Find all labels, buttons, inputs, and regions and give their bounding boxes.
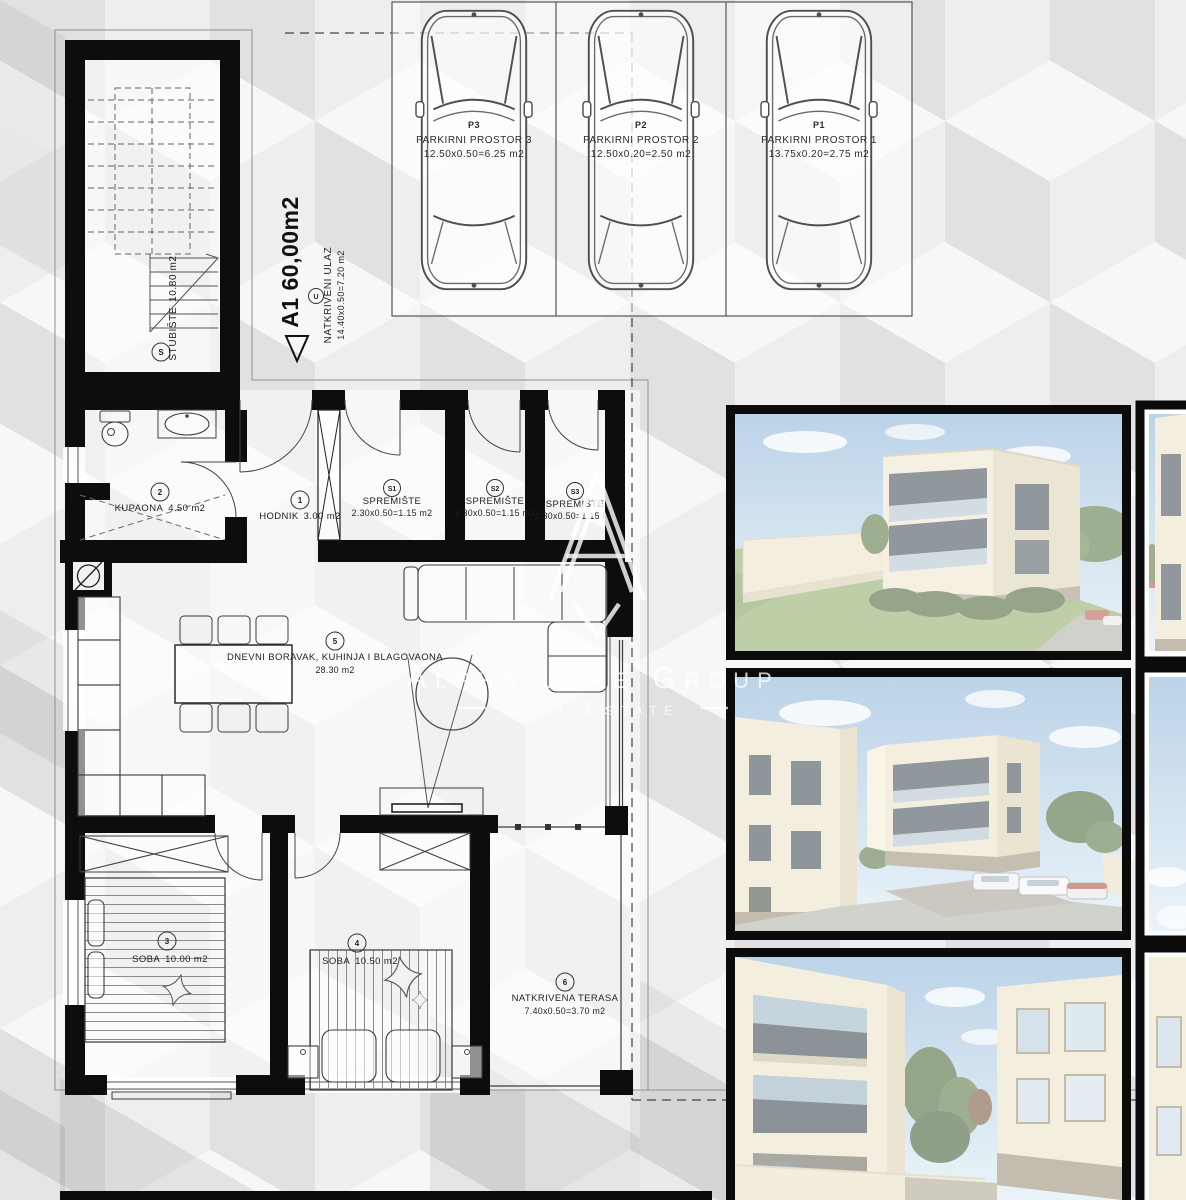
svg-text:S1: S1	[388, 486, 397, 493]
svg-text:28.30 m2: 28.30 m2	[315, 665, 354, 675]
svg-text:6: 6	[563, 978, 568, 987]
watermark-brand: Alpha Luxe Group	[406, 660, 780, 695]
render-1-image	[735, 414, 1135, 651]
render-sliver-2	[1140, 668, 1186, 940]
svg-text:NATKRIVENA TERASA: NATKRIVENA TERASA	[512, 993, 619, 1004]
svg-text:P3: P3	[468, 120, 480, 130]
svg-text:3: 3	[165, 937, 170, 946]
svg-text:KUPAONA4.50 m2: KUPAONA4.50 m2	[115, 503, 206, 514]
svg-text:U: U	[313, 294, 318, 301]
page: P3 PARKIRNI PROSTOR 3 12.50x0.50=6.25 m2…	[0, 0, 1186, 1200]
svg-text:SOBA10.50 m2: SOBA10.50 m2	[322, 956, 398, 967]
svg-text:NATKRIVENI ULAZ: NATKRIVENI ULAZ	[323, 247, 334, 344]
svg-text:SOBA10.00 m2: SOBA10.00 m2	[132, 954, 208, 965]
svg-text:7.40x0.50=3.70 m2: 7.40x0.50=3.70 m2	[525, 1006, 606, 1016]
svg-text:S: S	[158, 348, 164, 357]
nightstand-left	[288, 1046, 318, 1078]
svg-text:PARKIRNI PROSTOR 1: PARKIRNI PROSTOR 1	[761, 135, 877, 146]
render-sliver-3	[1140, 948, 1186, 1200]
nightstand-right	[452, 1046, 482, 1078]
svg-text:13.75x0.20=2.75 m2: 13.75x0.20=2.75 m2	[769, 149, 869, 160]
svg-text:SPREMIŠTE: SPREMIŠTE	[363, 496, 422, 507]
render-2-image	[725, 677, 1125, 931]
utility-shaft	[65, 555, 112, 597]
parking-area: P3 PARKIRNI PROSTOR 3 12.50x0.50=6.25 m2…	[392, 2, 912, 316]
svg-text:S2: S2	[491, 486, 500, 493]
svg-text:S3: S3	[571, 489, 580, 496]
svg-text:12.50x0.20=2.50 m2: 12.50x0.20=2.50 m2	[591, 149, 691, 160]
svg-text:STUBIŠTE10.80 m2: STUBIŠTE10.80 m2	[166, 255, 179, 360]
svg-text:4: 4	[355, 939, 360, 948]
render-3	[731, 953, 1127, 1200]
svg-text:2: 2	[158, 488, 163, 497]
svg-text:P2: P2	[635, 120, 647, 130]
pillow2	[386, 1030, 440, 1082]
render-sliver-1	[1140, 405, 1186, 661]
bedroom1-side-window	[63, 900, 85, 1005]
watermark-tagline: Real Estate	[506, 699, 679, 720]
floor-plan-canvas: P3 PARKIRNI PROSTOR 3 12.50x0.50=6.25 m2…	[0, 0, 1186, 1200]
render-3-image	[735, 957, 1122, 1200]
svg-text:A1 60,00m2: A1 60,00m2	[277, 196, 303, 328]
svg-text:2.30x0.50=1.15 m2: 2.30x0.50=1.15 m2	[352, 508, 433, 518]
svg-text:PARKIRNI PROSTOR 2: PARKIRNI PROSTOR 2	[583, 135, 699, 146]
svg-text:14.40x0.50=7.20 m2: 14.40x0.50=7.20 m2	[336, 250, 346, 340]
bathroom-window	[63, 447, 85, 483]
bottom-sheet-edge	[60, 1191, 712, 1200]
svg-text:SPREMIŠTE: SPREMIŠTE	[466, 496, 525, 507]
pillow1	[322, 1030, 376, 1082]
svg-text:1: 1	[298, 496, 303, 505]
svg-text:PARKIRNI PROSTOR 3: PARKIRNI PROSTOR 3	[416, 135, 532, 146]
svg-text:2.30x0.50=1.15 m2: 2.30x0.50=1.15 m2	[455, 508, 536, 518]
svg-text:12.50x0.50=6.25 m2: 12.50x0.50=6.25 m2	[424, 149, 524, 160]
render-2	[725, 673, 1127, 936]
svg-text:5: 5	[333, 637, 338, 646]
render-1	[731, 410, 1136, 656]
render-gallery	[725, 405, 1186, 1200]
svg-text:P1: P1	[813, 120, 825, 130]
